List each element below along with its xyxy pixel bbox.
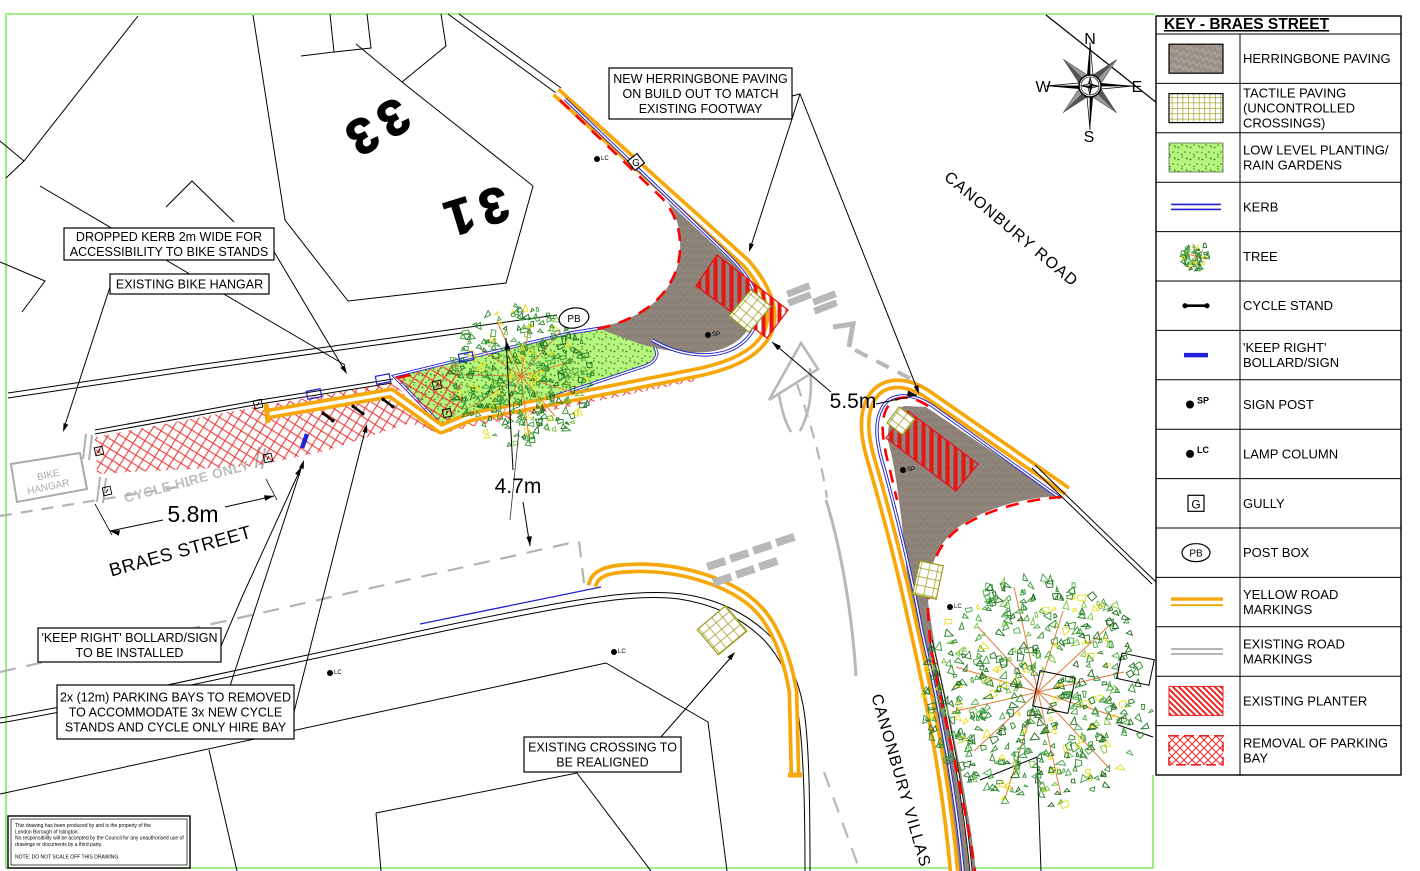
svg-text:POST BOX: POST BOX: [1243, 545, 1310, 560]
svg-text:S: S: [1084, 129, 1095, 146]
svg-text:EXISTING FOOTWAY: EXISTING FOOTWAY: [639, 102, 763, 116]
svg-text:TREE: TREE: [1243, 249, 1278, 264]
svg-text:ACCESSIBILITY TO BIKE STANDS: ACCESSIBILITY TO BIKE STANDS: [70, 245, 268, 259]
svg-text:LAMP COLUMN: LAMP COLUMN: [1243, 446, 1338, 461]
svg-text:drawings or documents by a thi: drawings or documents by a third party.: [15, 842, 102, 848]
svg-text:SIGN POST: SIGN POST: [1243, 397, 1314, 412]
svg-text:CYCLE STAND: CYCLE STAND: [1243, 298, 1333, 313]
svg-text:(UNCONTROLLED: (UNCONTROLLED: [1243, 101, 1355, 116]
svg-text:LC: LC: [1197, 445, 1209, 455]
svg-text:NEW HERRINGBONE PAVING: NEW HERRINGBONE PAVING: [613, 72, 788, 86]
svg-text:4.7m: 4.7m: [495, 475, 542, 498]
svg-text:EXISTING PLANTER: EXISTING PLANTER: [1243, 693, 1367, 708]
svg-text:London Borough of Islington.: London Borough of Islington.: [15, 829, 79, 835]
svg-text:BAY: BAY: [1243, 750, 1268, 765]
svg-text:No responsibility will be acce: No responsibility will be accepted by th…: [15, 836, 184, 842]
svg-text:LC: LC: [954, 604, 962, 610]
svg-text:STANDS AND CYCLE ONLY HIRE BAY: STANDS AND CYCLE ONLY HIRE BAY: [65, 720, 287, 734]
svg-text:SP: SP: [712, 332, 720, 338]
svg-text:MARKINGS: MARKINGS: [1243, 652, 1313, 667]
svg-text:BOLLARD/SIGN: BOLLARD/SIGN: [1243, 355, 1339, 370]
svg-text:G: G: [1191, 497, 1200, 511]
svg-text:5.8m: 5.8m: [167, 501, 218, 527]
svg-text:CROSSINGS): CROSSINGS): [1243, 116, 1325, 131]
svg-text:N: N: [1084, 31, 1096, 48]
svg-text:'KEEP RIGHT': 'KEEP RIGHT': [1243, 340, 1326, 355]
svg-text:SP: SP: [1197, 396, 1209, 406]
svg-text:EXISTING BIKE HANGAR: EXISTING BIKE HANGAR: [116, 277, 263, 291]
svg-text:HERRINGBONE PAVING: HERRINGBONE PAVING: [1243, 51, 1391, 66]
svg-text:ON BUILD OUT TO MATCH: ON BUILD OUT TO MATCH: [622, 87, 778, 101]
svg-text:5.5m: 5.5m: [830, 390, 877, 413]
svg-text:SP: SP: [907, 467, 915, 473]
svg-text:LC: LC: [334, 670, 342, 676]
svg-text:GULLY: GULLY: [1243, 496, 1285, 511]
svg-text:TO ACCOMMODATE 3x NEW CYCLE: TO ACCOMMODATE 3x NEW CYCLE: [69, 705, 282, 719]
svg-text:2x (12m) PARKING BAYS TO REMOV: 2x (12m) PARKING BAYS TO REMOVED: [60, 690, 291, 704]
svg-text:TO BE INSTALLED: TO BE INSTALLED: [76, 646, 184, 660]
svg-text:MARKINGS: MARKINGS: [1243, 602, 1313, 617]
svg-text:EXISTING ROAD: EXISTING ROAD: [1243, 637, 1345, 652]
svg-text:LC: LC: [618, 649, 626, 655]
svg-text:TACTILE PAVING: TACTILE PAVING: [1243, 86, 1346, 101]
svg-text:BE REALIGNED: BE REALIGNED: [556, 755, 648, 769]
svg-text:YELLOW ROAD: YELLOW ROAD: [1243, 587, 1338, 602]
svg-text:PB: PB: [567, 314, 581, 325]
svg-text:EXISTING CROSSING TO: EXISTING CROSSING TO: [528, 740, 677, 754]
svg-text:NOTE: DO NOT SCALE OFF THIS DR: NOTE: DO NOT SCALE OFF THIS DRAWING.: [15, 855, 120, 861]
svg-text:This drawing has been produced: This drawing has been produced by and is…: [15, 823, 151, 829]
svg-text:LOW LEVEL PLANTING/: LOW LEVEL PLANTING/: [1243, 143, 1389, 158]
svg-text:REMOVAL OF PARKING: REMOVAL OF PARKING: [1243, 735, 1388, 750]
svg-text:LC: LC: [601, 156, 609, 162]
svg-text:KERB: KERB: [1243, 199, 1278, 214]
svg-text:DROPPED KERB 2m WIDE FOR: DROPPED KERB 2m WIDE FOR: [76, 230, 262, 244]
svg-text:RAIN GARDENS: RAIN GARDENS: [1243, 158, 1342, 173]
svg-text:'KEEP RIGHT' BOLLARD/SIGN: 'KEEP RIGHT' BOLLARD/SIGN: [41, 631, 217, 645]
svg-text:W: W: [1035, 79, 1051, 96]
svg-text:G: G: [632, 158, 640, 169]
svg-text:KEY - BRAES STREET: KEY - BRAES STREET: [1164, 16, 1330, 33]
svg-text:E: E: [1132, 79, 1143, 96]
svg-text:PB: PB: [1189, 549, 1203, 560]
